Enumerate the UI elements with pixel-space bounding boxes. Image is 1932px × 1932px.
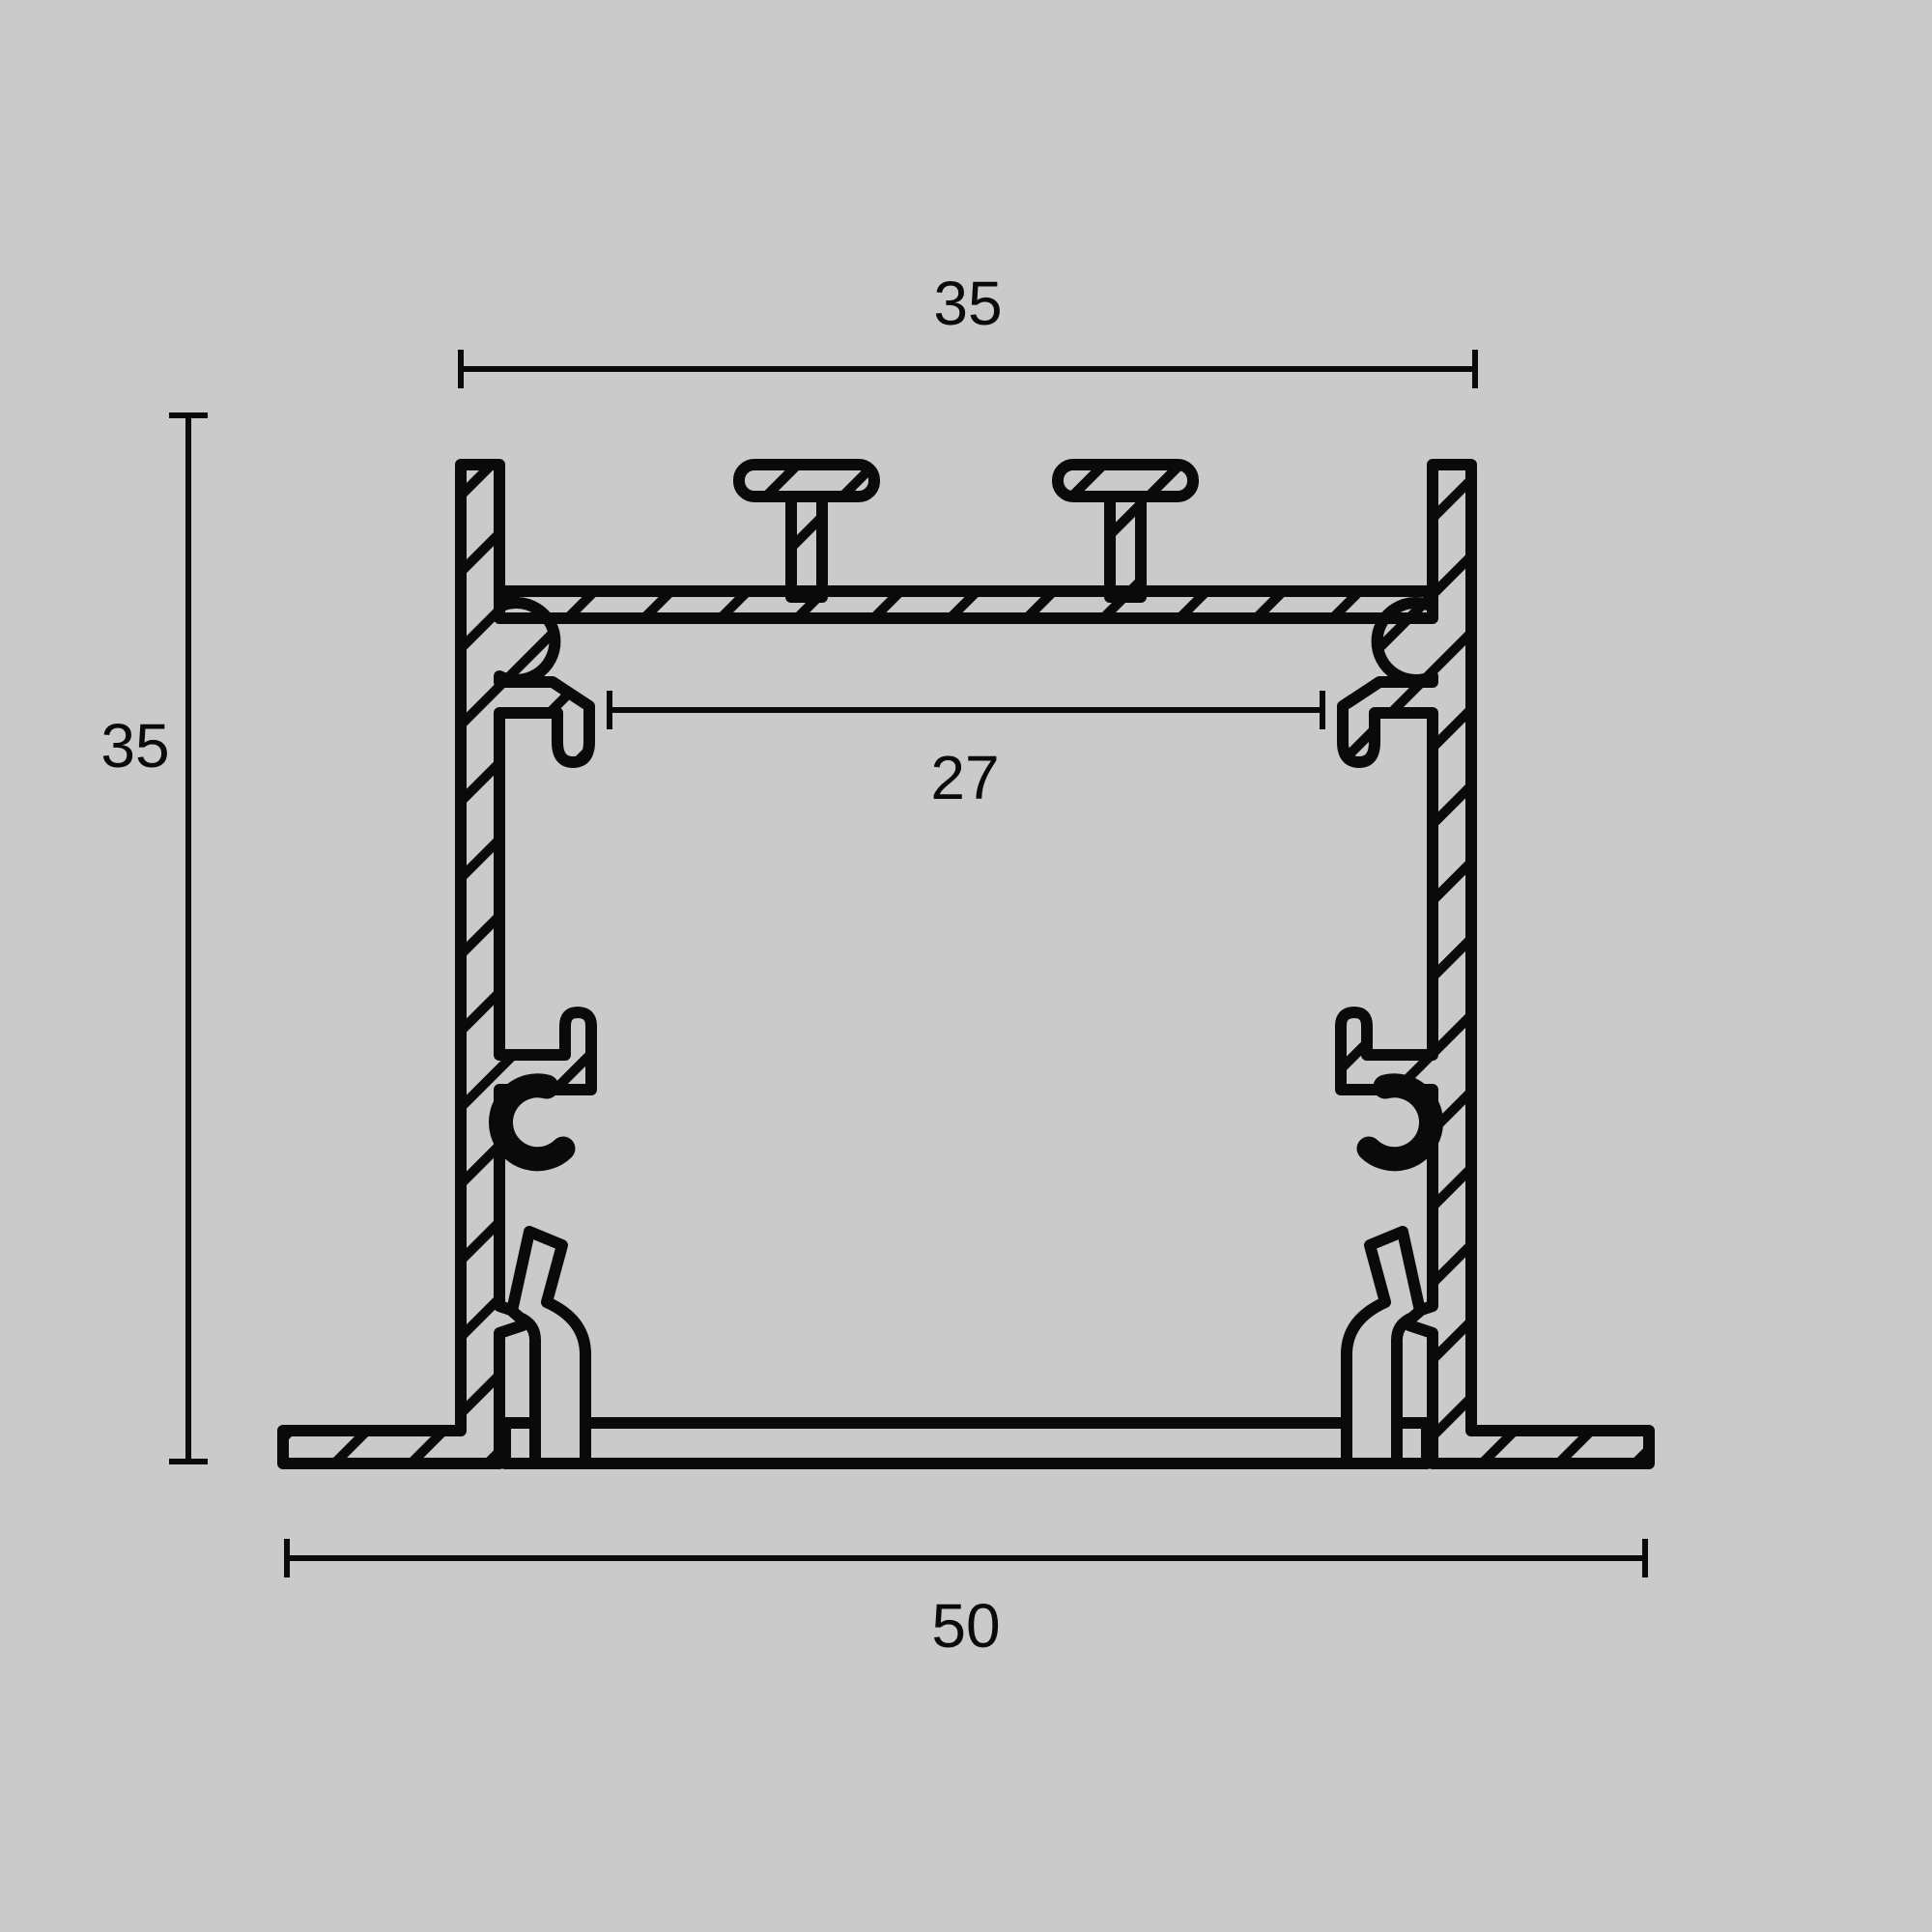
t-hanger-cap: [1058, 465, 1193, 497]
dim-label-top-width: 35: [933, 269, 1002, 338]
t-hanger-stem: [1110, 497, 1141, 597]
profile-cross-section-drawing: 35 35 27 50: [0, 0, 1932, 1932]
dim-label-inner-width: 27: [930, 743, 999, 812]
dim-label-height: 35: [100, 711, 169, 781]
drawing-canvas: 35 35 27 50: [0, 0, 1932, 1932]
t-hanger-stem: [791, 497, 822, 597]
t-hanger-cap: [739, 465, 874, 497]
bottom-base-plate: [505, 1423, 1427, 1463]
dim-label-bottom-width: 50: [931, 1591, 1000, 1661]
top-plate-section: [499, 591, 1433, 618]
